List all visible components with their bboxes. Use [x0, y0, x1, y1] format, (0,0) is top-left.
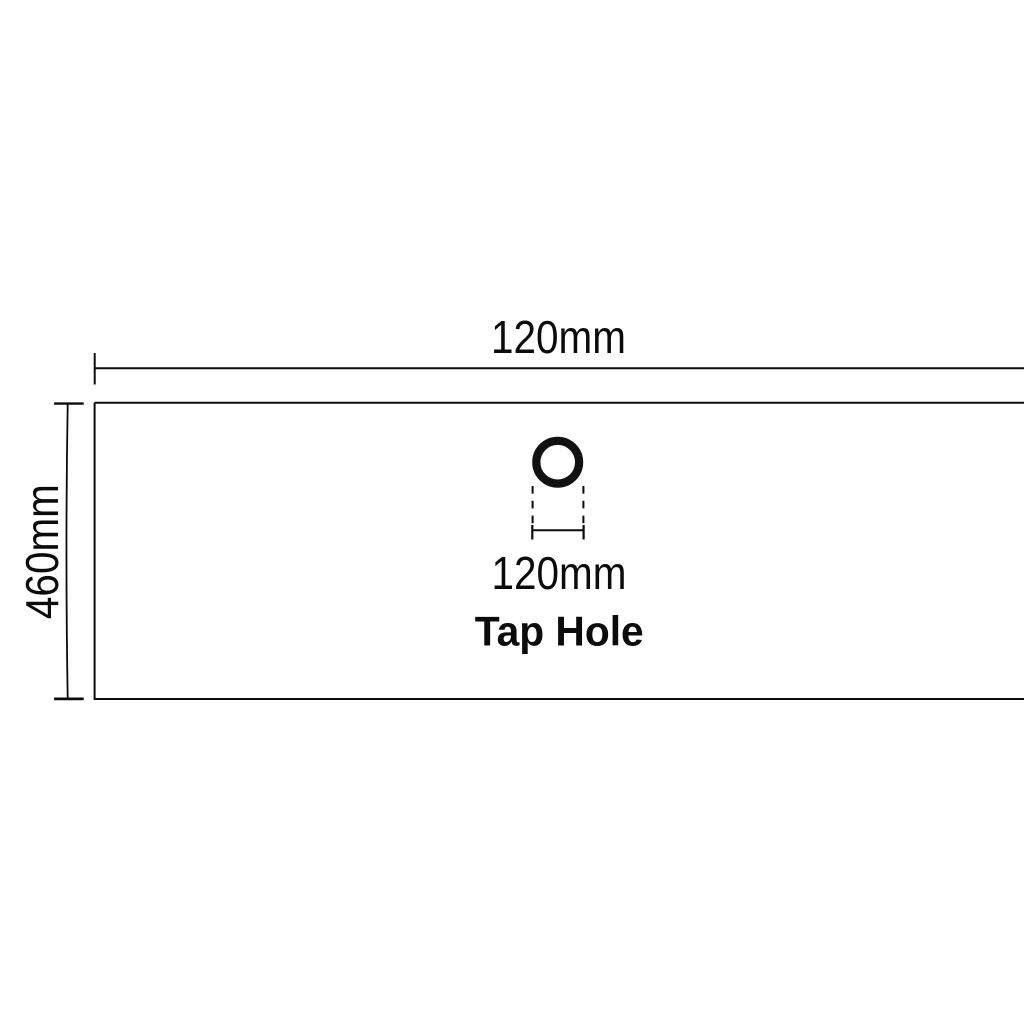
svg-text:460mm: 460mm [18, 484, 69, 619]
svg-text:120mm: 120mm [492, 548, 627, 599]
svg-text:120mm: 120mm [491, 312, 626, 363]
svg-text:Tap Hole: Tap Hole [475, 608, 644, 655]
